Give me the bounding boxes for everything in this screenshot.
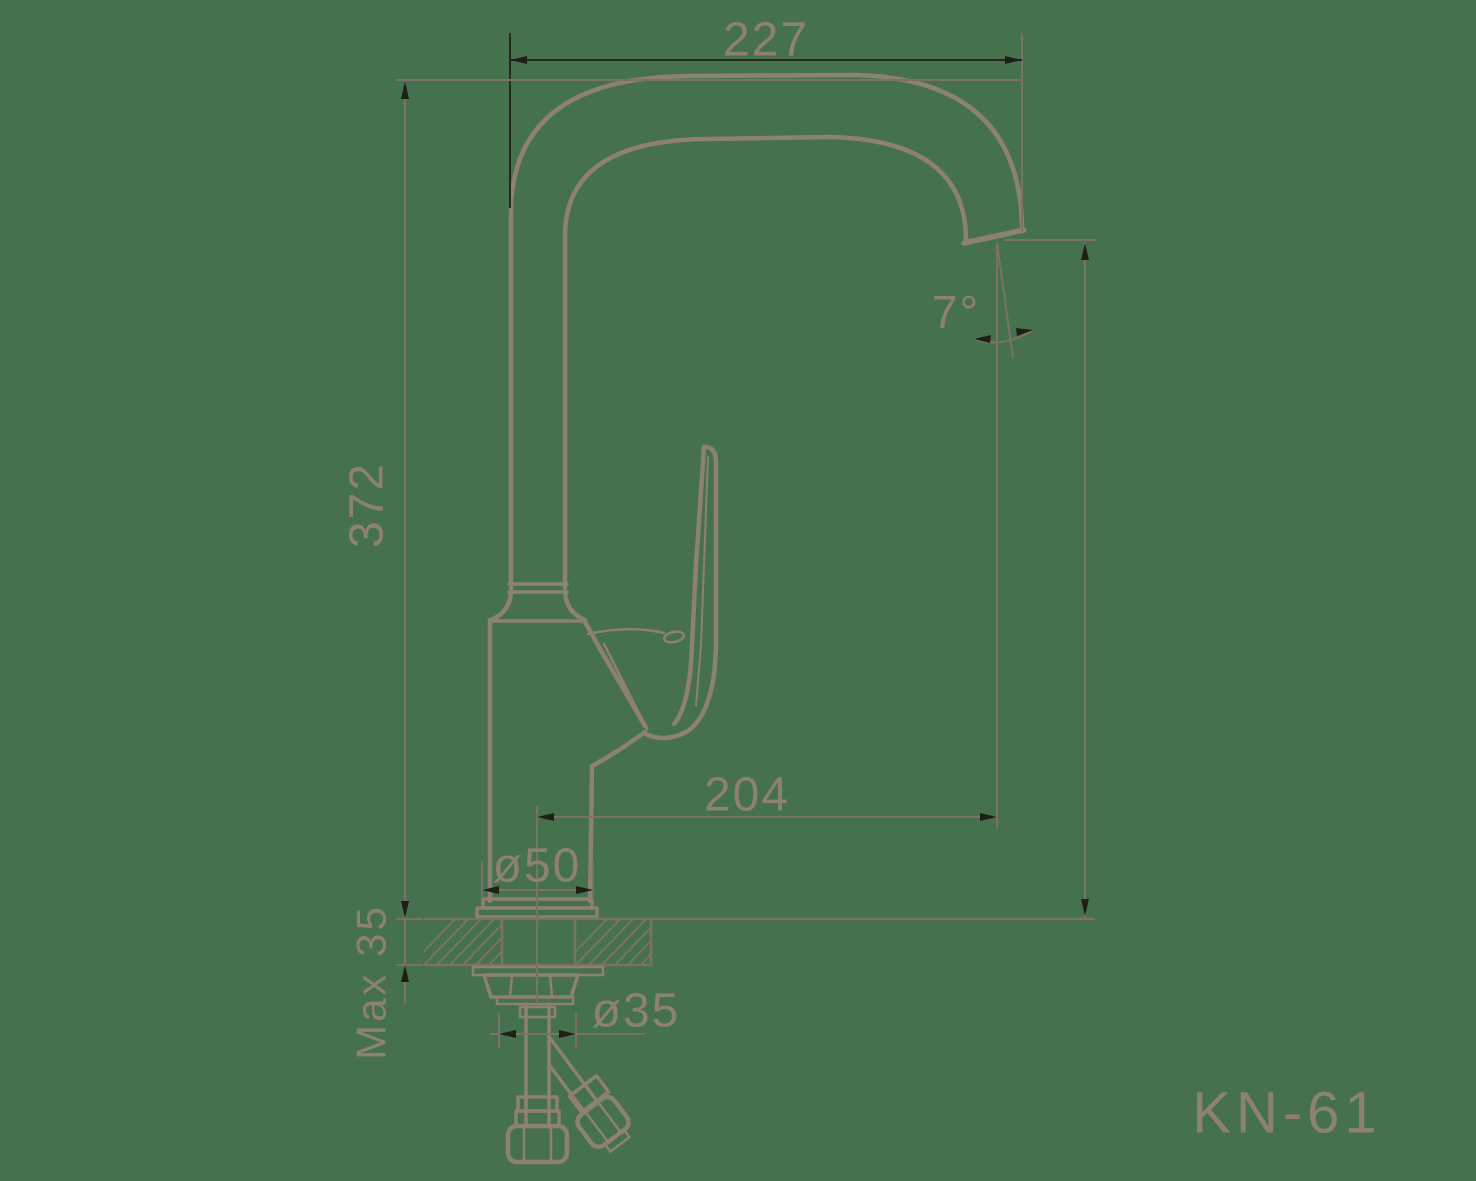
dim-label-base-diameter: ø50: [493, 840, 582, 893]
dim-label-total-height: 372: [341, 462, 394, 548]
hose-hex-nut-angled: [574, 1094, 637, 1158]
dim-label-spout-width: 227: [723, 14, 809, 67]
dim-label-max-thickness: Max 35: [348, 904, 395, 1060]
cartridge-pivot: [663, 630, 685, 644]
dim-outlet-height: [1004, 240, 1097, 917]
spout-outlet-face: [964, 230, 1024, 243]
dim-label-spout-reach: 204: [704, 769, 790, 822]
dim-max-thickness: Max 35: [348, 904, 424, 1060]
dim-base-diameter: ø50: [482, 840, 593, 900]
supply-hose-diagonal: [550, 1038, 637, 1158]
dim-thread-diameter: ø35: [490, 985, 680, 1049]
retaining-ring: [497, 997, 573, 1004]
dim-spout-reach: 204: [537, 769, 997, 1005]
dim-spout-angle: 7°: [932, 243, 1033, 829]
supply-hose-vertical: [508, 1004, 567, 1162]
model-number: KN-61: [1192, 1081, 1381, 1146]
dim-label-thread-diameter: ø35: [592, 985, 681, 1038]
handle-lever: [644, 447, 716, 738]
hose-hex-nut: [508, 1126, 567, 1162]
drawing-canvas: 227 372 7° 204 ø50: [0, 0, 1476, 1181]
dim-label-spout-angle: 7°: [932, 286, 980, 338]
dim-total-height: 372: [341, 80, 1023, 1004]
countertop-section: [404, 912, 1095, 972]
hatch-left: [404, 912, 553, 972]
hatch-right: [556, 912, 692, 972]
mounting-nut: [484, 975, 578, 997]
dim-spout-width: 227: [510, 14, 1022, 232]
faucet-technical-drawing: 227 372 7° 204 ø50: [0, 0, 1476, 1181]
